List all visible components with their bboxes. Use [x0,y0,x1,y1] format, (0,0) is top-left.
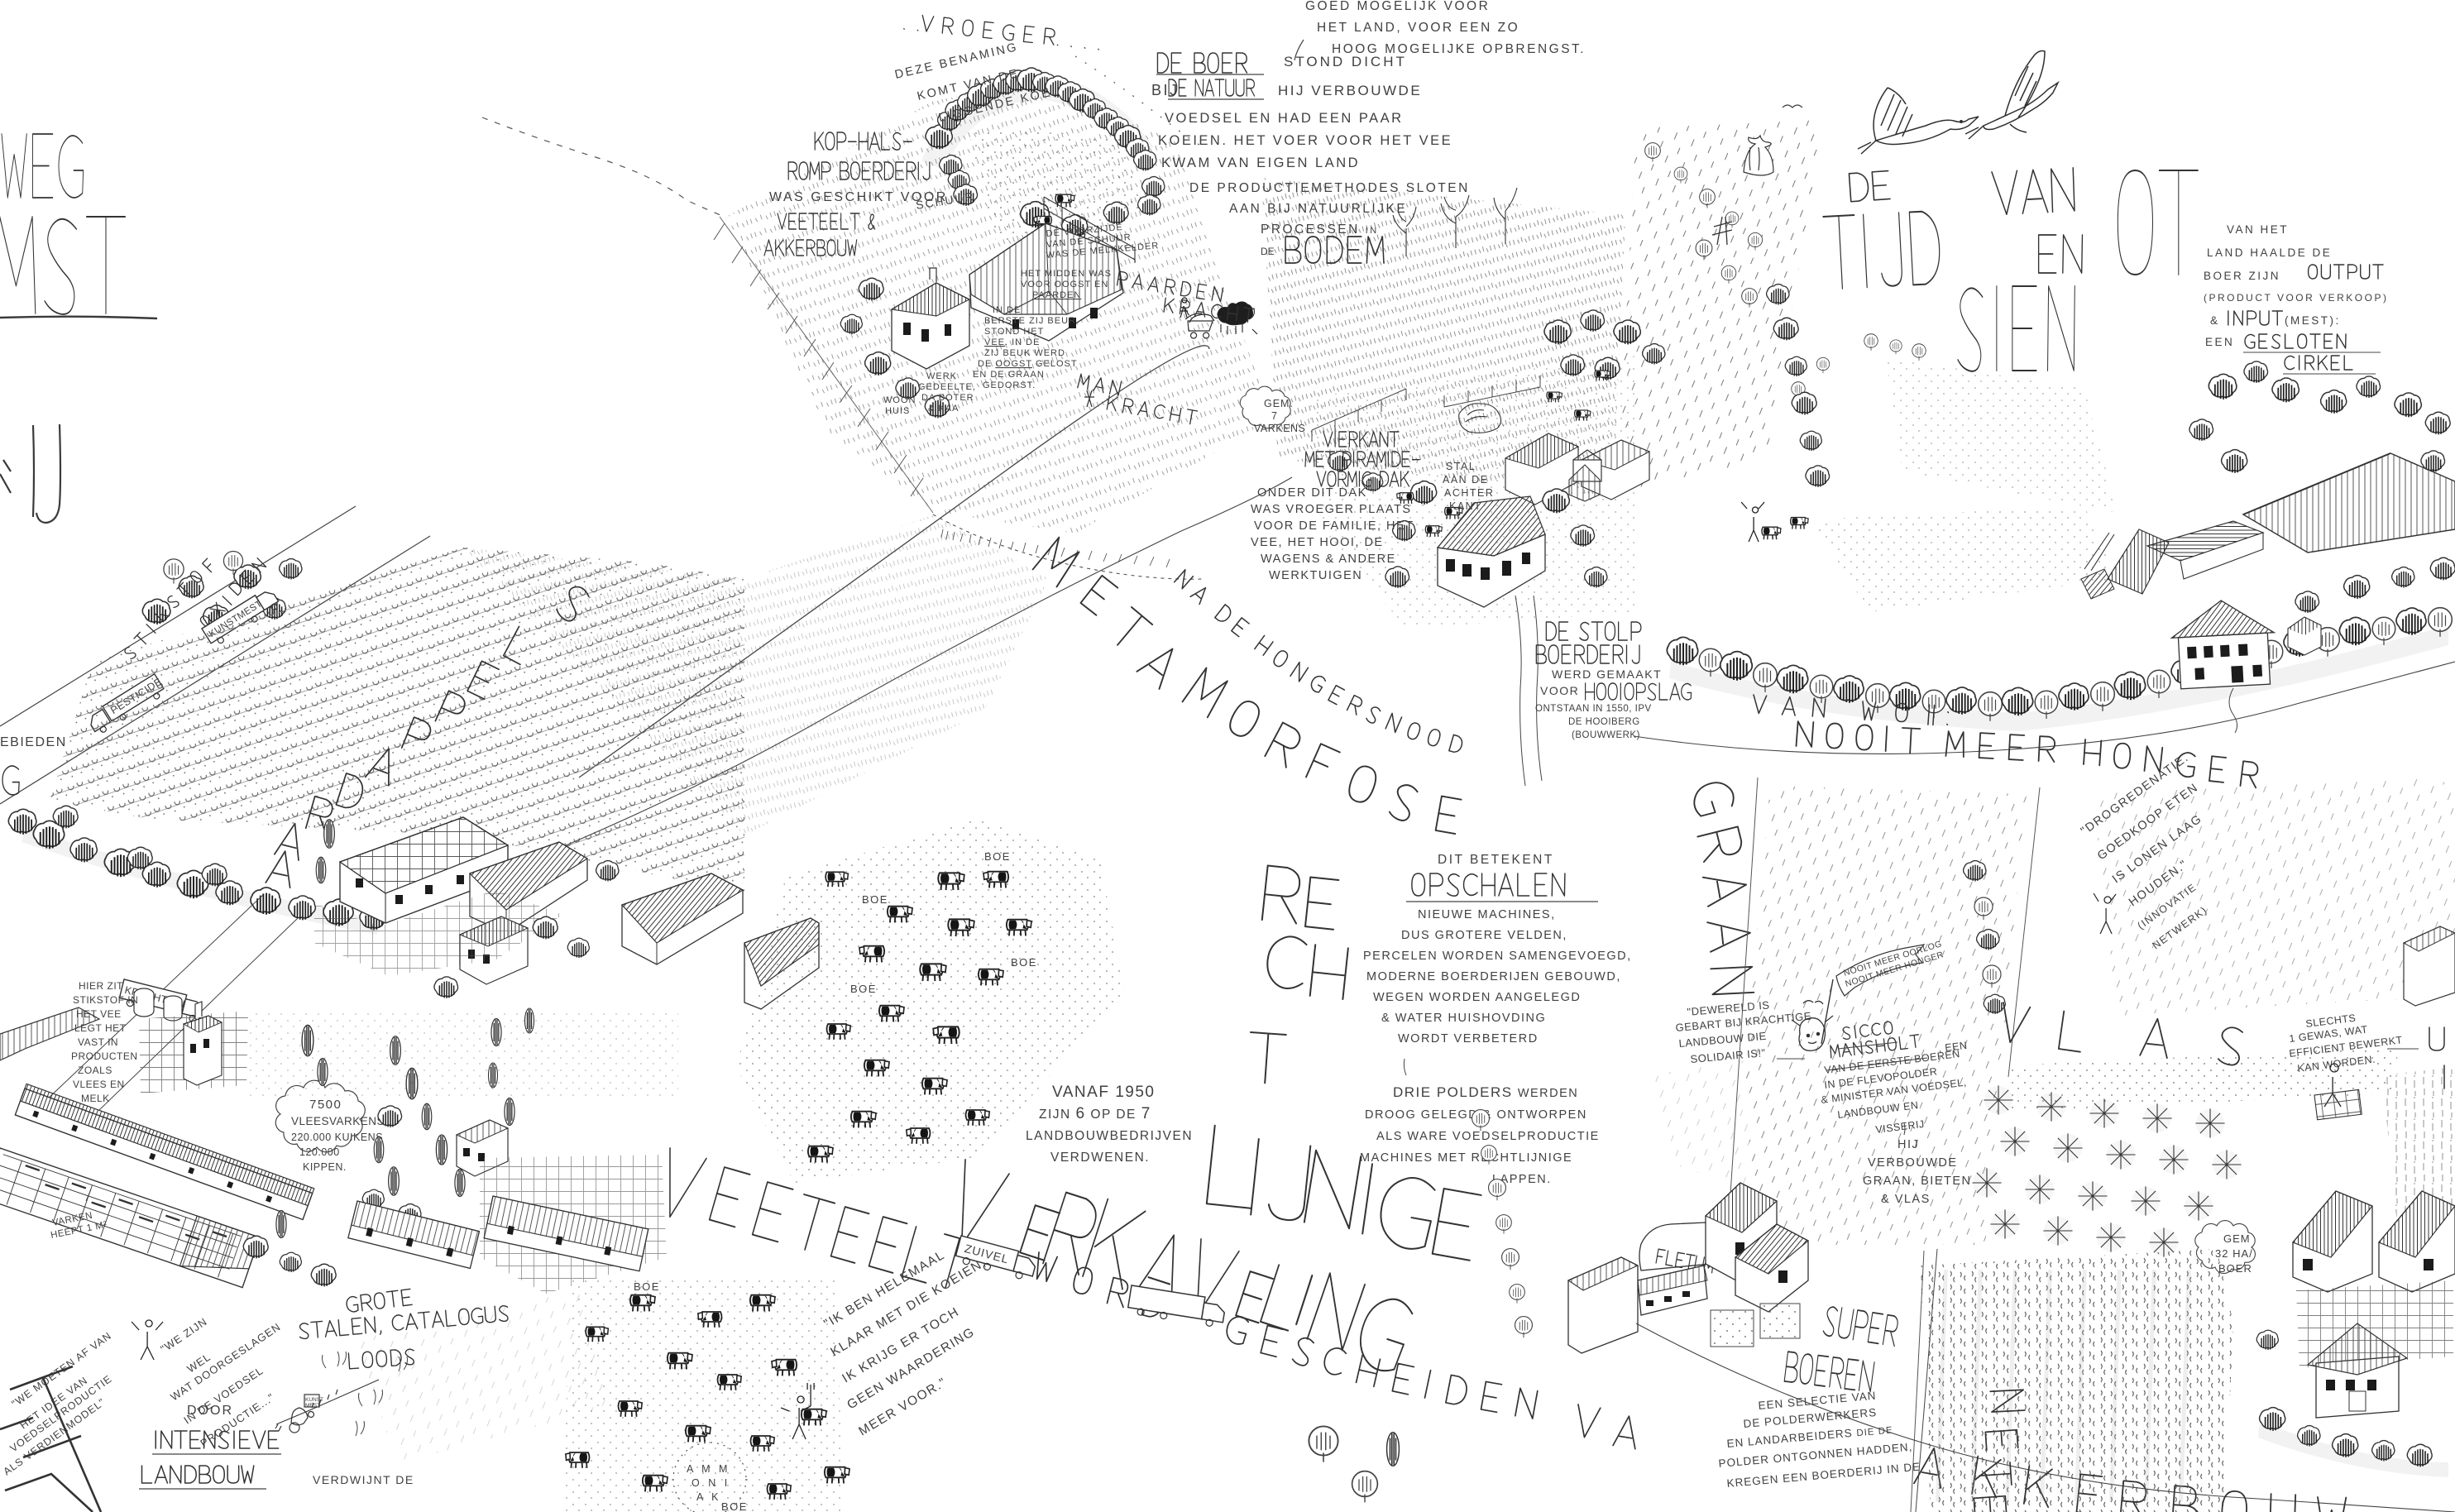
svg-text:VOOR DE FAMILIE, HET: VOOR DE FAMILIE, HET [1254,519,1414,533]
svg-text:VERBOUWDE: VERBOUWDE [1868,1156,1958,1170]
svg-text:ONTSTAAN IN 1550, IPV: ONTSTAAN IN 1550, IPV [1535,704,1652,714]
svg-text:WERKTUIGEN: WERKTUIGEN [1269,569,1362,582]
svg-text:VERDWENEN.: VERDWENEN. [1050,1151,1150,1165]
svg-text:KUNST: KUNST [305,1397,323,1403]
svg-text:VLEESVARKENS,: VLEESVARKENS, [291,1115,388,1127]
svg-text:GOED MOGELIJK VOOR: GOED MOGELIJK VOOR [1305,0,1490,13]
svg-text:VOOR: VOOR [1540,684,1579,697]
svg-text:BOER ZIJN: BOER ZIJN [2204,270,2280,282]
svg-text:LAND HAALDE DE: LAND HAALDE DE [2207,246,2332,259]
svg-text:VARKENS: VARKENS [1254,423,1305,434]
svg-text:& WATER HUISHOVDING: & WATER HUISHOVDING [1381,1012,1546,1025]
svg-text:DIT BETEKENT: DIT BETEKENT [1438,853,1554,867]
svg-text:DE OOGST GELOST: DE OOGST GELOST [978,359,1078,369]
svg-text:BOE: BOE [984,850,1011,863]
svg-text:ACHTER: ACHTER [1444,487,1494,499]
svg-text:HOOG MOGELIJKE OPBRENGST.: HOOG MOGELIJKE OPBRENGST. [1332,42,1586,56]
svg-text:VOOR OOGST EN: VOOR OOGST EN [1021,280,1108,289]
svg-text:BOE: BOE [721,1500,748,1512]
svg-text:VANAF 1950: VANAF 1950 [1052,1084,1155,1101]
svg-text:DE: DE [1261,246,1275,257]
svg-text:VEE. IN DE: VEE. IN DE [984,337,1040,347]
svg-text:WAS VROEGER PLAATS: WAS VROEGER PLAATS [1251,503,1412,516]
svg-text:& VLAS: & VLAS [1881,1193,1931,1206]
svg-text:HIJ VERBOUWDE: HIJ VERBOUWDE [1278,83,1422,98]
svg-text:MACHINES MET RECHTLIJNIGE: MACHINES MET RECHTLIJNIGE [1360,1151,1572,1165]
svg-text:NIEUWE MACHINES,: NIEUWE MACHINES, [1418,908,1556,921]
svg-text:WORDT VERBETERD: WORDT VERBETERD [1398,1032,1539,1045]
svg-text:DE PRODUCTIEMETHODES SLOTEN: DE PRODUCTIEMETHODES SLOTEN [1189,181,1470,195]
svg-text:WERK: WERK [926,371,957,381]
svg-text:(PRODUCT VOOR VERKOOP): (PRODUCT VOOR VERKOOP) [2204,292,2388,304]
svg-text:EEN: EEN [2205,336,2234,348]
svg-text:ONDER DIT DAK: ONDER DIT DAK [1257,486,1367,500]
svg-text:MELK: MELK [81,1093,110,1104]
svg-text:BOE: BOE [862,893,888,906]
svg-text:HET LAND, VOOR EEN ZO: HET LAND, VOOR EEN ZO [1317,21,1519,35]
svg-text:BOE: BOE [634,1280,660,1293]
svg-text:LANDBOUWBEDRIJVEN: LANDBOUWBEDRIJVEN [1026,1129,1193,1143]
svg-text:VAN HET: VAN HET [2227,223,2289,236]
svg-text:WOON: WOON [883,395,916,405]
svg-text:HIER ZIT: HIER ZIT [79,980,123,992]
svg-text:GRAAN, BIETEN: GRAAN, BIETEN [1863,1175,1972,1188]
svg-text:GEM: GEM [2223,1232,2251,1245]
svg-text:GEDORST.: GEDORST. [983,380,1036,390]
svg-text:120.000: 120.000 [299,1146,340,1158]
svg-text:PRODUCTEN: PRODUCTEN [71,1050,138,1062]
svg-text:DE HOOIBERG: DE HOOIBERG [1568,717,1640,727]
svg-text:DA BOTER: DA BOTER [921,393,974,403]
svg-text:& KAA: & KAA [928,404,959,414]
svg-text:DRIE POLDERS WERDEN: DRIE POLDERS WERDEN [1393,1084,1578,1100]
svg-text:HUIS: HUIS [885,406,910,416]
svg-text:AAN BIJ NATUURLIJKE: AAN BIJ NATUURLIJKE [1229,202,1407,216]
svg-text:HET MIDDEN WAS: HET MIDDEN WAS [1021,269,1112,279]
svg-text:32 HA/: 32 HA/ [2215,1247,2253,1260]
svg-text:HIJ: HIJ [1897,1138,1919,1151]
svg-text:AAN DE: AAN DE [1443,474,1489,486]
svg-text:ZOALS: ZOALS [78,1065,112,1076]
svg-text:PAARDEN: PAARDEN [1032,290,1081,300]
svg-text:MEST: MEST [305,1403,320,1409]
svg-text:VEE, HET HOOI, DE: VEE, HET HOOI, DE [1251,536,1384,549]
svg-text:(MEST):: (MEST): [2285,314,2341,327]
svg-text:DOOR: DOOR [187,1404,233,1418]
svg-text:DUS GROTERE VELDEN,: DUS GROTERE VELDEN, [1401,929,1567,942]
svg-text:KIPPEN.: KIPPEN. [303,1161,347,1173]
svg-text:STAL: STAL [1446,461,1476,472]
svg-text:WAGENS & ANDERE: WAGENS & ANDERE [1261,553,1396,566]
svg-text:STIKSTOF IN: STIKSTOF IN [73,994,138,1006]
svg-text:PERCELEN WORDEN SAMENGEVOEGD,: PERCELEN WORDEN SAMENGEVOEGD, [1363,950,1632,963]
svg-text:ZIJ BEUK WERD: ZIJ BEUK WERD [984,348,1065,358]
svg-text:BOE: BOE [1011,956,1037,969]
svg-text:KANT: KANT [1449,500,1481,512]
svg-text:ZIJN 6 OP DE 7: ZIJN 6 OP DE 7 [1039,1105,1151,1122]
svg-text:220.000 KUIKENS: 220.000 KUIKENS [291,1132,383,1143]
svg-text:(BOUWWERK): (BOUWWERK) [1572,730,1640,740]
svg-text:VOEDSEL EN HAD EEN PAAR: VOEDSEL EN HAD EEN PAAR [1165,111,1404,126]
svg-text:IN DE: IN DE [993,305,1021,315]
svg-text:WEGEN WORDEN AANGELEGD: WEGEN WORDEN AANGELEGD [1373,991,1581,1004]
svg-text:MODERNE BOERDERIJEN GEBOUWD,: MODERNE BOERDERIJEN GEBOUWD, [1366,970,1621,983]
svg-text:GEDEELTE,: GEDEELTE, [918,382,976,392]
svg-text:&: & [2210,314,2220,327]
svg-text:KOEIEN. HET VOER VOOR HET VEE: KOEIEN. HET VOER VOOR HET VEE [1158,133,1452,148]
svg-text:EN DE GRAAN: EN DE GRAAN [973,370,1045,380]
svg-text:KWAM VAN EIGEN LAND: KWAM VAN EIGEN LAND [1161,156,1360,170]
svg-text:VERDWIJNT DE: VERDWIJNT DE [313,1473,414,1486]
svg-text:BOER: BOER [2218,1262,2252,1275]
svg-text:BIJ: BIJ [1151,82,1180,98]
svg-text:VLEES EN: VLEES EN [73,1079,125,1090]
svg-text:GEM.: GEM. [1264,398,1294,409]
svg-text:BERSTE ZIJ BEUR: BERSTE ZIJ BEUR [984,316,1076,326]
svg-text:ALS WARE VOEDSELPRODUCTIE: ALS WARE VOEDSELPRODUCTIE [1376,1130,1600,1143]
svg-text:STOND HET: STOND HET [984,327,1044,337]
svg-text:BOE: BOE [850,983,877,995]
svg-text:VAST IN: VAST IN [78,1036,118,1048]
svg-text:EBIEDEN: EBIEDEN [0,735,67,749]
svg-text:7: 7 [1271,410,1277,422]
svg-text:WERD GEMAAKT: WERD GEMAAKT [1552,667,1662,681]
svg-text:PROCESSEN IN: PROCESSEN IN [1261,222,1379,237]
